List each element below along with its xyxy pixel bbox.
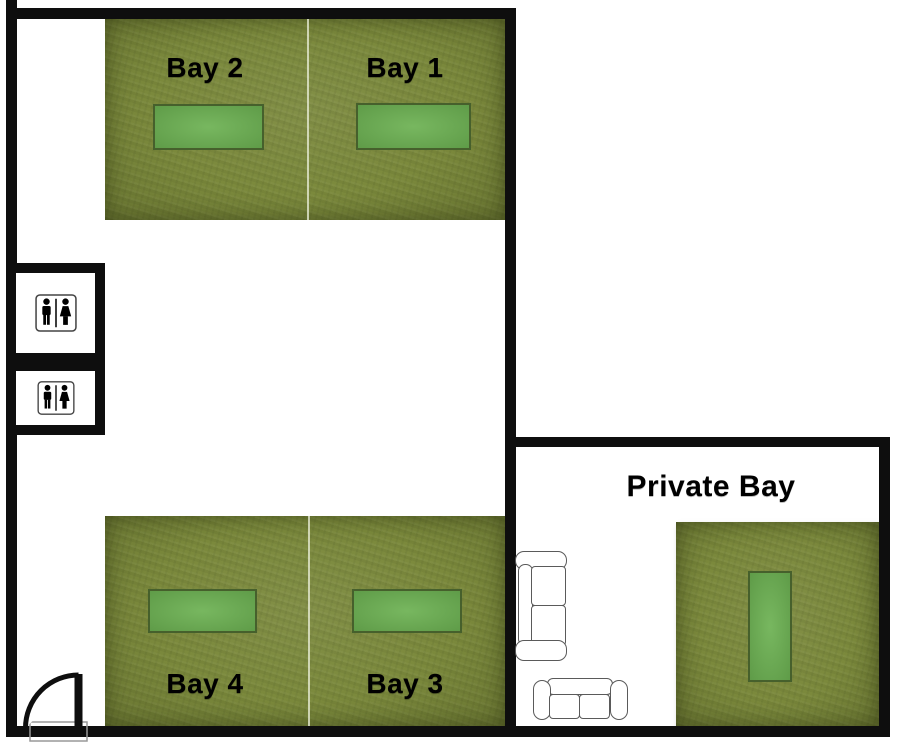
restroom-upper	[6, 263, 105, 363]
hitting-mat-private-bay	[748, 571, 792, 682]
wall-right-main	[505, 8, 516, 737]
hitting-mat-bay2	[153, 104, 264, 150]
door-swing-arc	[26, 675, 79, 728]
couch-backrest	[547, 678, 613, 695]
male-female-restroom-icon	[37, 381, 75, 415]
couch-armrest	[610, 680, 628, 720]
male-female-restroom-icon	[35, 294, 77, 332]
bay-divider-line	[307, 19, 309, 220]
couch-seat-cushion	[549, 694, 580, 719]
bay4-label: Bay 4	[105, 668, 305, 700]
hitting-mat-bay4	[148, 589, 257, 633]
wall-bottom	[6, 726, 890, 737]
bay3-label: Bay 3	[305, 668, 505, 700]
hitting-mat-bay3	[352, 589, 462, 633]
bay1-label: Bay 1	[305, 52, 505, 84]
couch-seat-cushion	[531, 566, 566, 606]
hitting-mat-bay1	[356, 103, 471, 150]
wall-private-bay-top	[505, 437, 890, 447]
couch-armrest	[515, 640, 567, 661]
bay2-label: Bay 2	[105, 52, 305, 84]
wall-top	[6, 8, 516, 19]
couch-seat-cushion	[579, 694, 610, 719]
entrance-door-icon	[20, 672, 90, 744]
floor-plan: Bay 2 Bay 1 Bay 4 Bay 3 Private Bay	[0, 0, 898, 744]
restroom-lower	[6, 361, 105, 435]
private-bay-label: Private Bay	[536, 470, 886, 504]
